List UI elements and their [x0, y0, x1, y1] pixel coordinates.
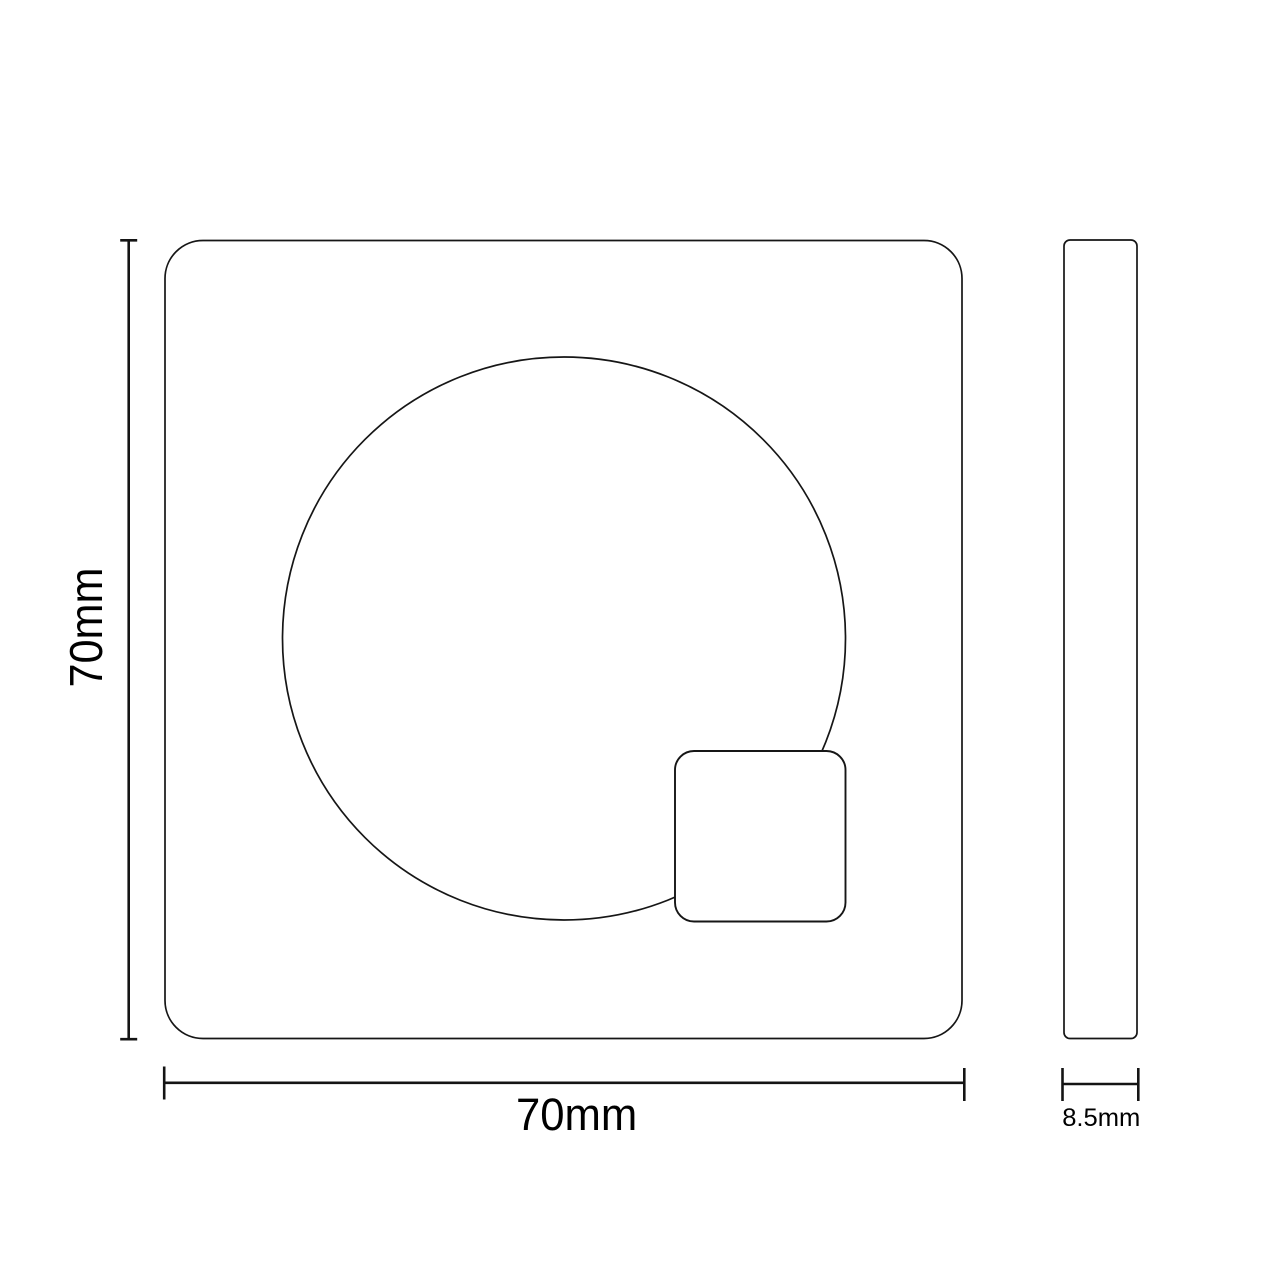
svg-text:8.5mm: 8.5mm — [1062, 1104, 1140, 1132]
svg-text:70mm: 70mm — [60, 568, 112, 688]
svg-text:70mm: 70mm — [516, 1089, 637, 1140]
